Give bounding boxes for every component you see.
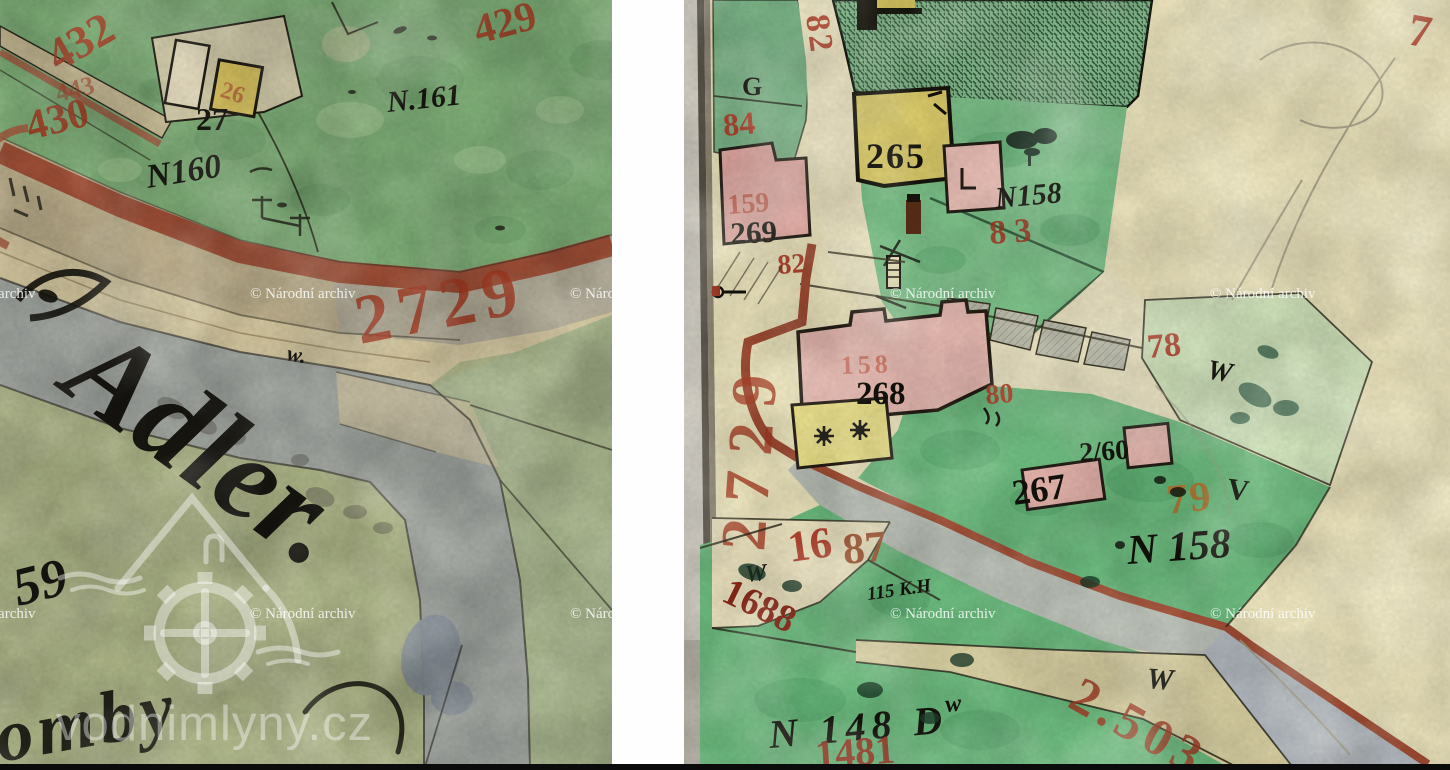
svg-text:© Národní archiv: © Národní archiv (0, 286, 36, 302)
svg-text:© Národní archiv: © Národní archiv (0, 606, 36, 622)
svg-text:© Národní archiv: © Národní archiv (250, 286, 356, 302)
svg-text:© Národní archiv: © Národní archiv (1210, 286, 1316, 302)
svg-text:© Národní archiv: © Národní archiv (890, 606, 996, 622)
svg-text:© Národní archiv: © Národní archiv (250, 606, 356, 622)
svg-text:vodnimlyny.cz: vodnimlyny.cz (56, 697, 373, 751)
svg-text:© Národní archiv: © Národní archiv (890, 286, 996, 302)
svg-text:© Národní archiv: © Národní archiv (1210, 606, 1316, 622)
